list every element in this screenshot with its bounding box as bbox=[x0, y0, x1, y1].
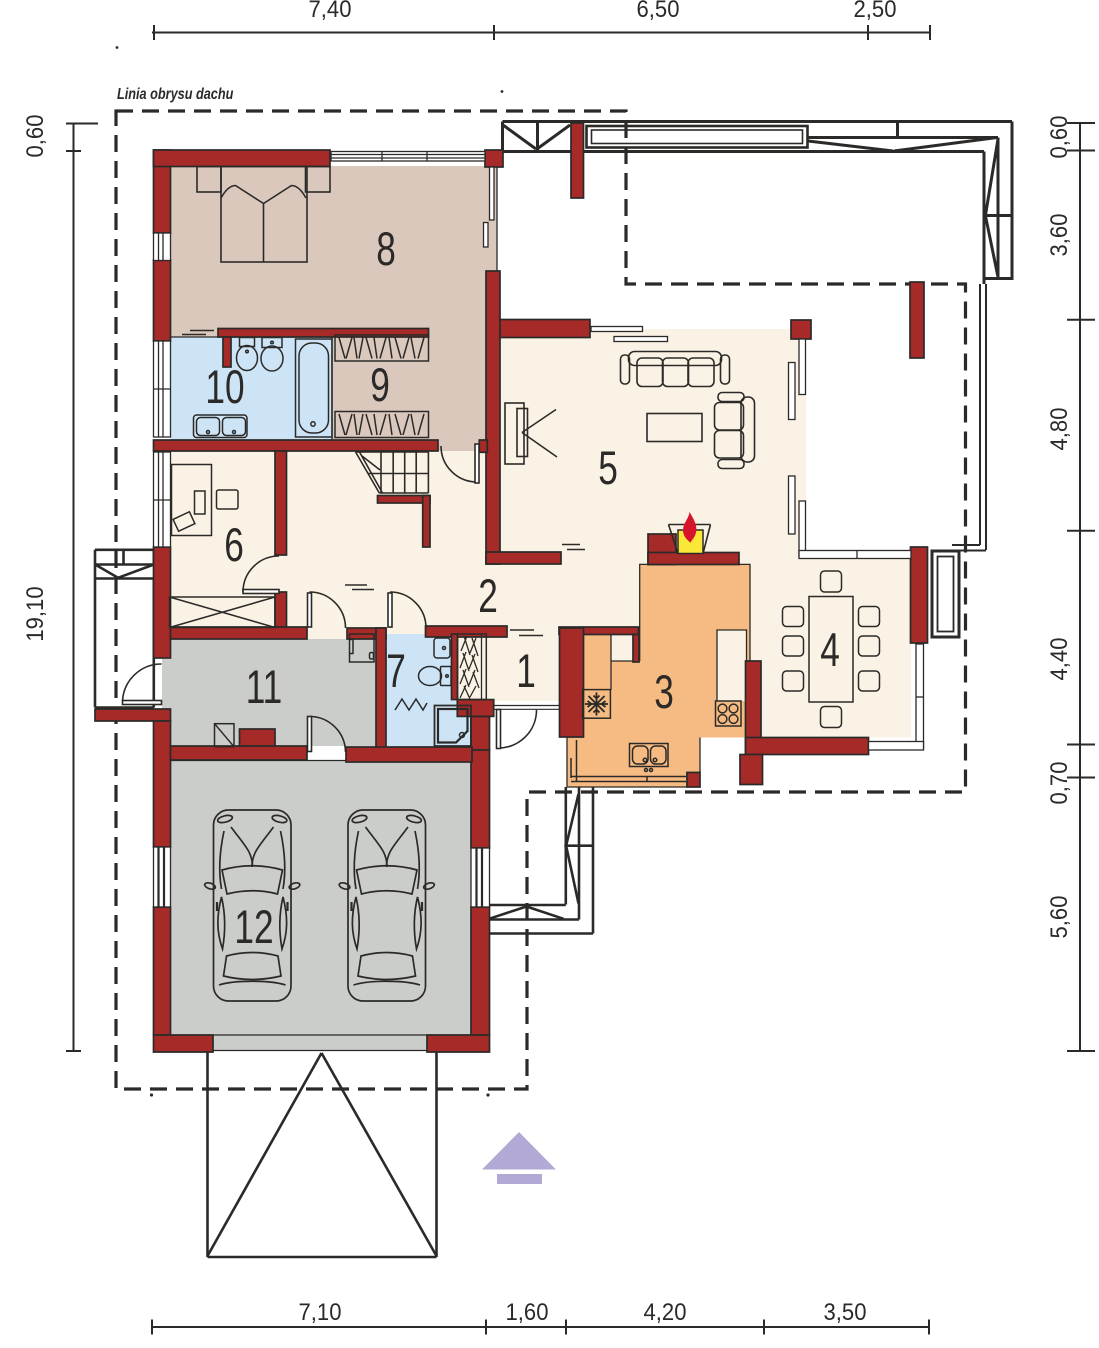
svg-text:6: 6 bbox=[224, 518, 244, 571]
svg-text:19,10: 19,10 bbox=[21, 586, 48, 641]
svg-text:8: 8 bbox=[376, 222, 396, 275]
svg-text:1,60: 1,60 bbox=[506, 1298, 549, 1325]
svg-text:6,50: 6,50 bbox=[637, 0, 680, 22]
svg-text:11: 11 bbox=[246, 660, 283, 713]
svg-text:7: 7 bbox=[386, 644, 406, 697]
svg-text:4: 4 bbox=[820, 623, 840, 676]
svg-text:4,80: 4,80 bbox=[1045, 408, 1072, 451]
svg-text:3: 3 bbox=[654, 665, 674, 718]
svg-text:0,60: 0,60 bbox=[1045, 116, 1072, 159]
svg-text:0,60: 0,60 bbox=[21, 115, 48, 158]
svg-text:5,60: 5,60 bbox=[1045, 896, 1072, 939]
svg-text:Linia obrysu dachu: Linia obrysu dachu bbox=[117, 86, 234, 103]
svg-text:7,40: 7,40 bbox=[309, 0, 352, 22]
svg-text:10: 10 bbox=[205, 360, 244, 413]
svg-text:5: 5 bbox=[598, 441, 618, 494]
svg-text:7,10: 7,10 bbox=[299, 1298, 342, 1325]
svg-text:4,20: 4,20 bbox=[644, 1298, 687, 1325]
svg-text:0,70: 0,70 bbox=[1045, 762, 1072, 805]
svg-text:1: 1 bbox=[516, 644, 536, 697]
svg-text:2: 2 bbox=[478, 569, 498, 622]
svg-text:12: 12 bbox=[234, 900, 273, 953]
svg-text:2,50: 2,50 bbox=[854, 0, 897, 22]
svg-text:3,50: 3,50 bbox=[824, 1298, 867, 1325]
svg-text:3,60: 3,60 bbox=[1045, 214, 1072, 257]
svg-text:4,40: 4,40 bbox=[1045, 638, 1072, 681]
svg-text:9: 9 bbox=[370, 358, 390, 411]
